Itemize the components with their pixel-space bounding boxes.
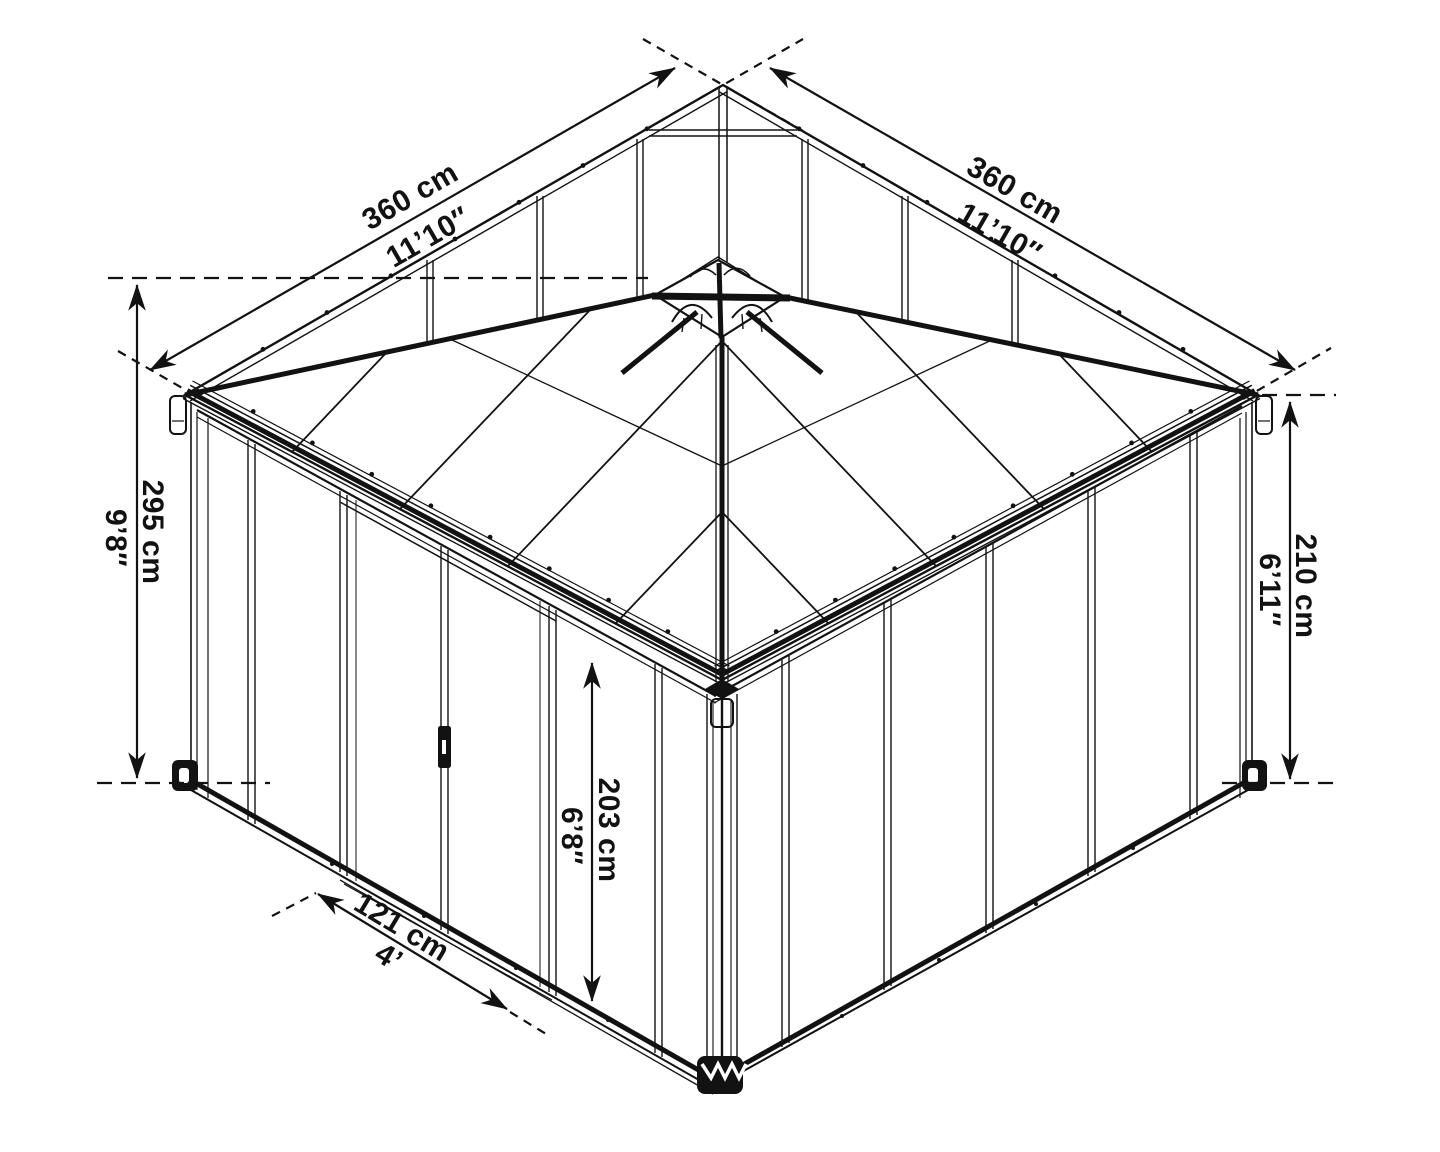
dim-wall-height: 210 cm 6’11″ bbox=[1222, 395, 1336, 783]
dim-label-total-height-metric: 295 cm bbox=[136, 480, 169, 585]
right-wall bbox=[713, 402, 1252, 1088]
roof-eave-right bbox=[715, 381, 1261, 684]
dim-door-height: 203 cm 6’8″ bbox=[555, 663, 625, 1001]
front-corner-post bbox=[705, 679, 739, 1086]
gutter-cap-left bbox=[170, 396, 186, 434]
anchor-feet bbox=[172, 760, 1267, 1094]
roof-screws bbox=[774, 409, 1193, 634]
gutter-cap-right bbox=[1256, 396, 1272, 434]
dim-label-door-height-imperial: 6’8″ bbox=[555, 807, 588, 865]
roof-eave-left bbox=[183, 381, 730, 684]
roof bbox=[183, 85, 1260, 684]
gazebo-line-drawing: 360 cm 11’10″ 360 cm 11’10″ 295 cm 9’8″ … bbox=[0, 0, 1440, 1152]
dim-roof-edge-right: 360 cm 11’10″ bbox=[770, 68, 1331, 399]
dim-label-total-height-imperial: 9’8″ bbox=[99, 509, 132, 567]
left-wall bbox=[191, 402, 716, 1094]
eave-corner-cap bbox=[705, 679, 739, 699]
roof-hips bbox=[185, 88, 1258, 682]
gazebo-dimension-diagram-page: { "diagram": { "dimensions": { "roof_edg… bbox=[0, 0, 1440, 1152]
dim-label-wall-height-imperial: 6’11″ bbox=[1253, 553, 1286, 627]
roof-screws bbox=[251, 409, 670, 634]
dim-label-door-height-metric: 203 cm bbox=[592, 778, 625, 883]
right-wall-mullions bbox=[782, 431, 1197, 1047]
dim-label-wall-height-metric: 210 cm bbox=[1289, 534, 1322, 639]
